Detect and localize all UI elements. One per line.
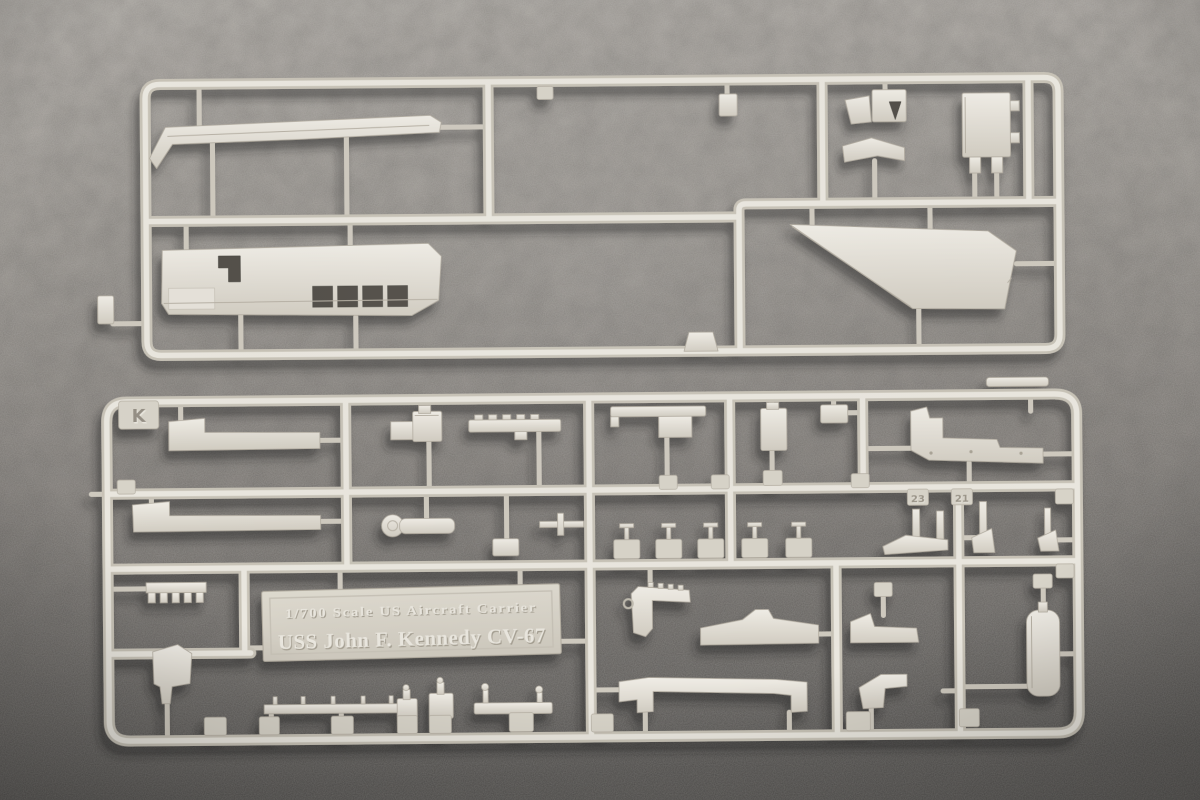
photo-vignette [0,0,1200,800]
photo-model-kit-sprues: K K 1/700 Scale [0,0,1200,800]
sprue-photo-canvas: K K 1/700 Scale [0,0,1200,800]
